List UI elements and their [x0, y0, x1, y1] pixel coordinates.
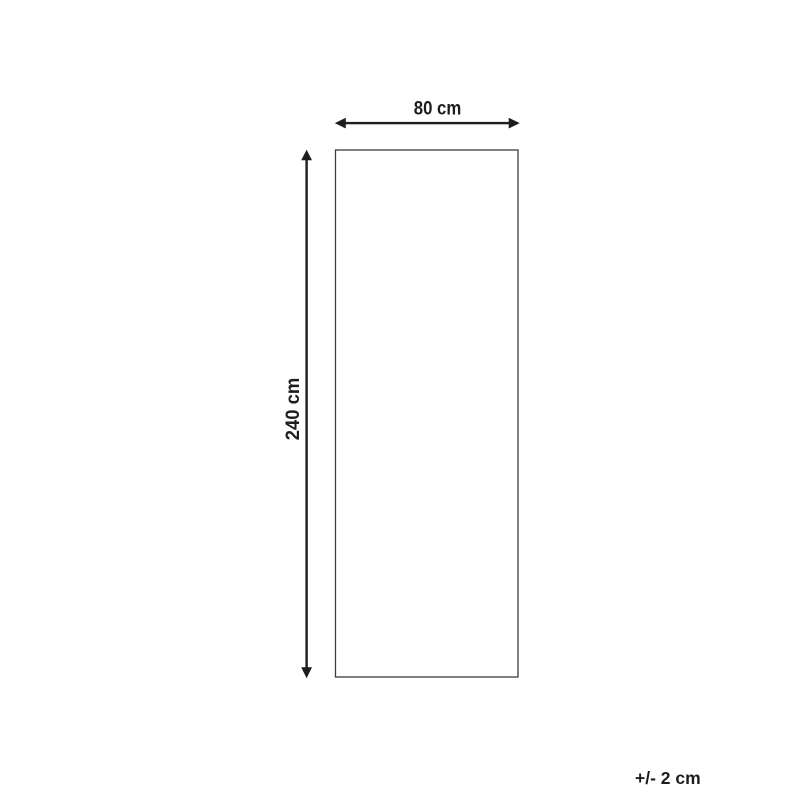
svg-text:+/- 2 cm: +/- 2 cm: [635, 768, 701, 788]
svg-text:80 cm: 80 cm: [414, 98, 462, 120]
svg-text:240 cm: 240 cm: [282, 378, 304, 441]
